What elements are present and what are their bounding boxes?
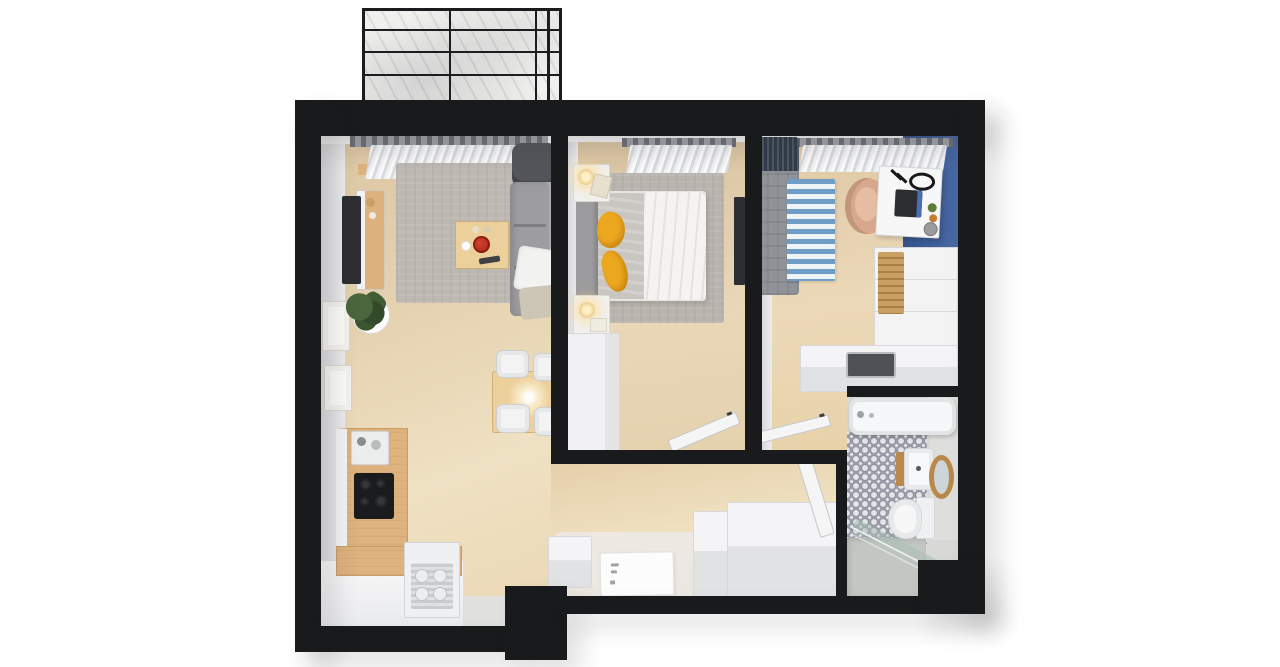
hall-corner-cabinet: [548, 536, 592, 588]
books: [590, 173, 613, 199]
cup: [472, 226, 479, 233]
bedroom-wardrobe: [566, 333, 620, 455]
remote: [479, 255, 501, 264]
wall-living-bedroom: [551, 130, 568, 464]
wall-left: [295, 100, 321, 652]
balcony-rail: [365, 29, 559, 31]
monitor: [894, 189, 922, 217]
cooktop: [354, 473, 394, 519]
balcony: [362, 8, 562, 104]
kids-striped-rug: [787, 179, 835, 281]
floor-plan-scene: [0, 0, 1280, 667]
round-mirror: [929, 455, 954, 499]
wall-notch: [918, 560, 985, 614]
kids-desk: [875, 165, 943, 238]
coffee-machine: [351, 431, 389, 465]
kids-bed-pillow: [757, 137, 799, 171]
wall-bottom-kitchen: [295, 626, 510, 652]
plant-leaves: [344, 290, 388, 332]
wall-bathroom-top: [847, 386, 958, 397]
dishwasher-open: [404, 542, 460, 618]
tv: [342, 196, 361, 284]
bedroom-wall-art: [734, 197, 745, 285]
cup: [461, 241, 471, 251]
plate: [415, 587, 429, 601]
wall-right: [958, 100, 985, 614]
burner: [375, 495, 387, 507]
jar: [923, 222, 938, 237]
bedroom-window: [622, 138, 736, 176]
plate: [433, 569, 447, 583]
coffee-table: [455, 221, 509, 269]
nightstand: [573, 295, 610, 335]
tray: [590, 318, 607, 332]
wall-top: [295, 100, 985, 136]
bed-headboard: [576, 191, 598, 301]
tub-faucet: [857, 411, 864, 418]
sofa-cushion-gap: [514, 224, 546, 227]
curtain: [626, 145, 732, 173]
mat-mark: [611, 570, 617, 573]
wood-slat-panel: [878, 252, 904, 314]
table-lamp: [579, 302, 595, 318]
wall-bathroom-left: [836, 450, 847, 597]
wall-frame: [324, 365, 352, 411]
toilet-bowl: [888, 499, 922, 539]
burner: [360, 479, 371, 490]
wall-bedroom-kids: [745, 130, 762, 464]
plate: [433, 587, 447, 601]
red-bowl: [473, 236, 490, 253]
nightstand: [573, 164, 610, 202]
balcony-post: [547, 11, 550, 101]
balcony-rail: [365, 74, 559, 76]
pencil-cup: [928, 203, 937, 212]
balcony-rail: [365, 51, 559, 53]
burner: [376, 479, 385, 488]
mat-mark: [610, 580, 615, 584]
sink-drain: [916, 466, 921, 471]
plate: [415, 569, 429, 583]
coffee-cup: [357, 437, 366, 446]
cabinet-inset: [846, 352, 896, 378]
cup: [484, 226, 491, 233]
bathtub: [849, 398, 956, 435]
mat-mark: [611, 563, 619, 566]
desk-lamp: [909, 172, 936, 191]
doormat: [600, 551, 675, 596]
dining-chair: [496, 350, 529, 378]
balcony-post: [449, 11, 451, 101]
decor-candle: [369, 212, 376, 219]
coffee-cup: [371, 440, 381, 450]
wall-step: [505, 586, 567, 660]
decor-vase: [366, 198, 375, 207]
tub-drain: [869, 413, 874, 418]
bed-white-duvet: [644, 192, 706, 300]
balcony-post: [535, 11, 537, 101]
wall-south-bedrooms: [551, 450, 847, 464]
kids-low-cabinet: [800, 345, 958, 392]
kids-dresser: [874, 247, 958, 346]
burner: [360, 497, 369, 506]
dining-chair: [496, 404, 530, 433]
